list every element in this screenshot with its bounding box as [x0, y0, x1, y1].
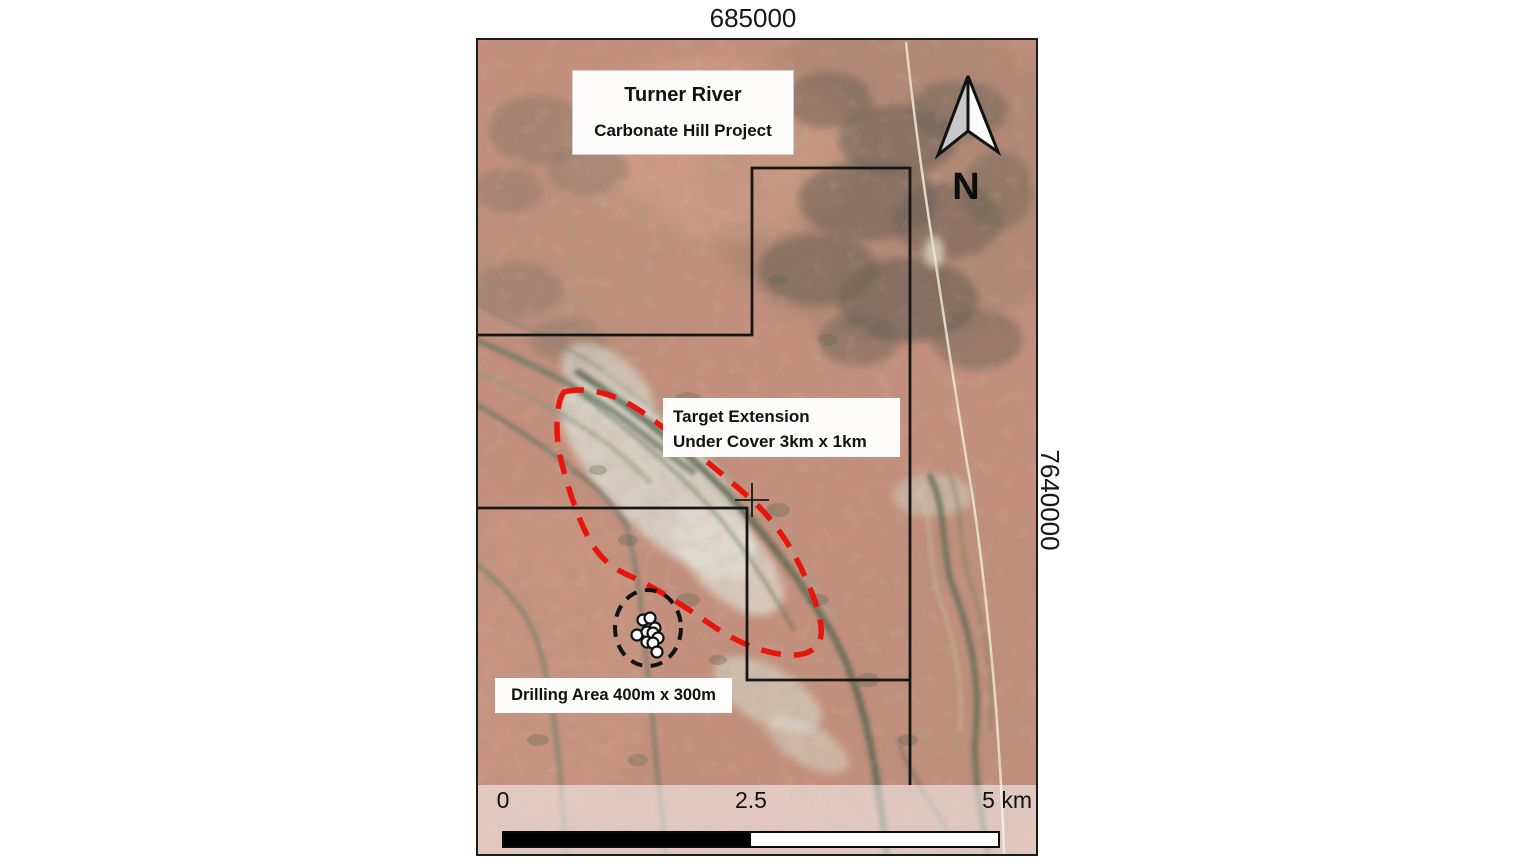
scale-bar-black-segment [504, 833, 751, 846]
satellite-map: Turner River Carbonate Hill Project Targ… [476, 38, 1038, 856]
grid-label-easting: 685000 [676, 3, 830, 34]
drill-hole-dot [652, 647, 663, 658]
map-title-box: Turner River Carbonate Hill Project [572, 70, 794, 155]
scale-tick-mid: 2.5 [720, 787, 782, 814]
drilling-area-label: Drilling Area 400m x 300m [495, 678, 732, 713]
tenement-boundary-south [478, 508, 910, 680]
target-extension-line1: Target Extension [673, 404, 900, 429]
scale-bar-white-segment [751, 833, 998, 846]
north-arrow-icon [938, 76, 998, 155]
target-extension-line2: Under Cover 3km x 1km [673, 429, 900, 454]
north-label: N [942, 166, 990, 209]
drill-holes-group [632, 613, 664, 658]
scale-tick-end: 5 km [982, 787, 1032, 814]
scale-bar [502, 831, 1000, 848]
scale-bar-panel: 0 2.5 5 km [478, 785, 1036, 854]
grid-label-northing: 7640000 [1035, 435, 1065, 565]
scale-tick-start: 0 [488, 787, 518, 814]
target-extension-label: Target Extension Under Cover 3km x 1km [663, 398, 900, 457]
map-subtitle: Carbonate Hill Project [573, 121, 793, 141]
map-title: Turner River [573, 84, 793, 107]
map-figure-page: 685000 7640000 [0, 0, 1536, 864]
